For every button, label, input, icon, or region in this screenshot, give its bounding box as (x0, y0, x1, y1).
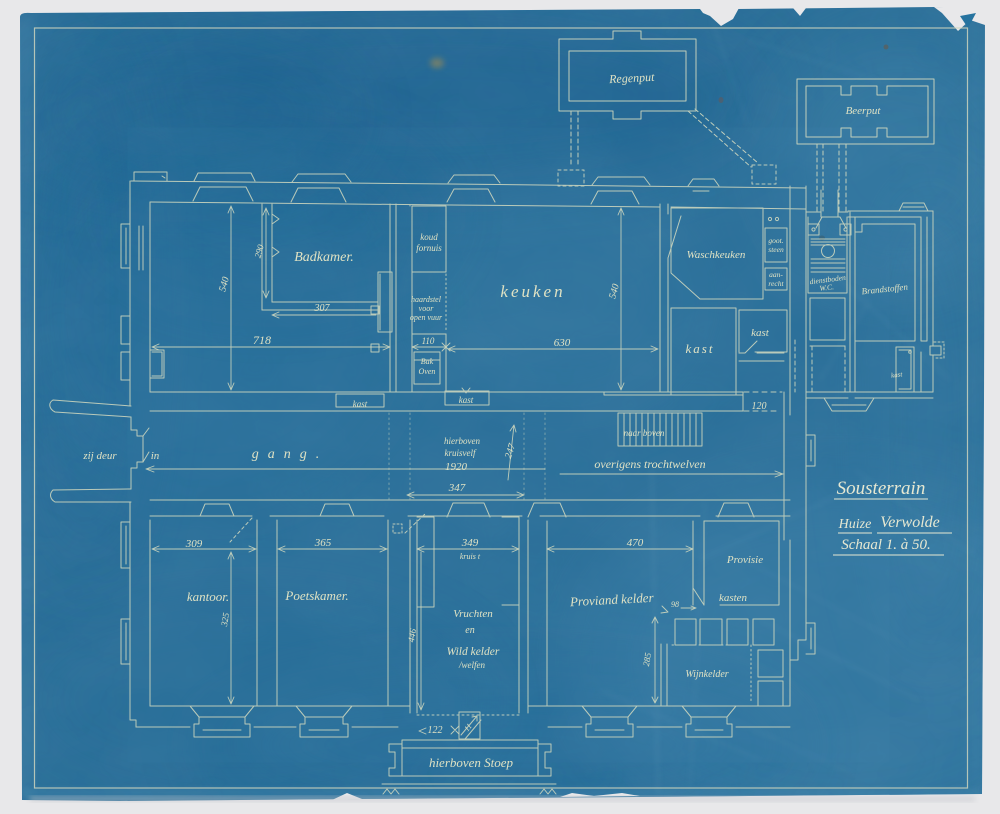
svg-text:voor: voor (419, 304, 435, 313)
svg-text:Wijnkelder: Wijnkelder (685, 669, 728, 680)
svg-text:349: 349 (461, 537, 479, 549)
svg-text:Regenput: Regenput (608, 70, 656, 86)
svg-text:Wild kelder: Wild kelder (447, 646, 500, 658)
svg-text:120: 120 (752, 401, 767, 412)
svg-text:fornuis: fornuis (416, 243, 442, 253)
svg-text:122: 122 (428, 725, 443, 736)
svg-text:Badkamer.: Badkamer. (294, 250, 354, 265)
svg-text:hierboven Stoep: hierboven Stoep (429, 755, 514, 770)
svg-text:kast: kast (459, 395, 474, 405)
svg-text:overigens trochtwelven: overigens trochtwelven (594, 457, 705, 471)
svg-text:Sousterrain: Sousterrain (837, 478, 926, 499)
svg-text:Oven: Oven (419, 367, 436, 376)
svg-text:kantoor.: kantoor. (187, 589, 229, 604)
svg-text:718: 718 (253, 333, 271, 347)
svg-text:in: in (151, 450, 160, 462)
svg-text:Verwolde: Verwolde (880, 514, 940, 531)
svg-text:goot.: goot. (768, 236, 783, 245)
svg-text:en: en (465, 625, 474, 636)
svg-text:Poetskamer.: Poetskamer. (284, 588, 348, 603)
svg-text:kast: kast (751, 327, 770, 339)
svg-text:koud: koud (420, 232, 438, 242)
svg-text:zij deur: zij deur (82, 450, 117, 462)
svg-text:307: 307 (314, 303, 331, 314)
svg-text:kasten: kasten (719, 592, 748, 604)
svg-text:347: 347 (448, 482, 466, 494)
svg-text:630: 630 (554, 337, 571, 349)
svg-text:309: 309 (185, 538, 203, 550)
svg-text:Vruchten: Vruchten (453, 608, 493, 620)
svg-text:110: 110 (422, 336, 435, 346)
svg-text:/welfen: /welfen (458, 660, 485, 670)
svg-text:Bak: Bak (421, 357, 434, 366)
svg-text:haardstel: haardstel (411, 295, 442, 304)
svg-text:Schaal 1. à 50.: Schaal 1. à 50. (841, 537, 931, 553)
svg-text:open vuur: open vuur (410, 313, 443, 322)
svg-text:W.C.: W.C. (819, 282, 834, 293)
svg-text:naar boven: naar boven (624, 428, 665, 438)
svg-text:steen: steen (768, 245, 784, 254)
svg-text:Huize: Huize (838, 517, 872, 532)
svg-text:1920: 1920 (445, 461, 468, 473)
svg-text:recht: recht (768, 279, 784, 288)
svg-text:365: 365 (314, 537, 332, 549)
svg-text:Provisie: Provisie (726, 554, 763, 566)
svg-text:kast: kast (686, 341, 715, 356)
svg-text:aan-: aan- (769, 270, 783, 279)
svg-text:keuken: keuken (500, 282, 565, 301)
svg-text:kruis t: kruis t (460, 552, 481, 561)
svg-text:gang.: gang. (252, 447, 329, 462)
svg-text:470: 470 (627, 537, 644, 549)
svg-text:kruisvelf: kruisvelf (445, 448, 477, 458)
svg-text:98: 98 (671, 600, 679, 609)
svg-text:hierboven: hierboven (444, 436, 480, 446)
svg-text:kast: kast (891, 370, 904, 380)
svg-text:kast: kast (353, 399, 368, 409)
svg-text:Beerput: Beerput (846, 105, 882, 117)
svg-text:Waschkeuken: Waschkeuken (687, 249, 746, 261)
